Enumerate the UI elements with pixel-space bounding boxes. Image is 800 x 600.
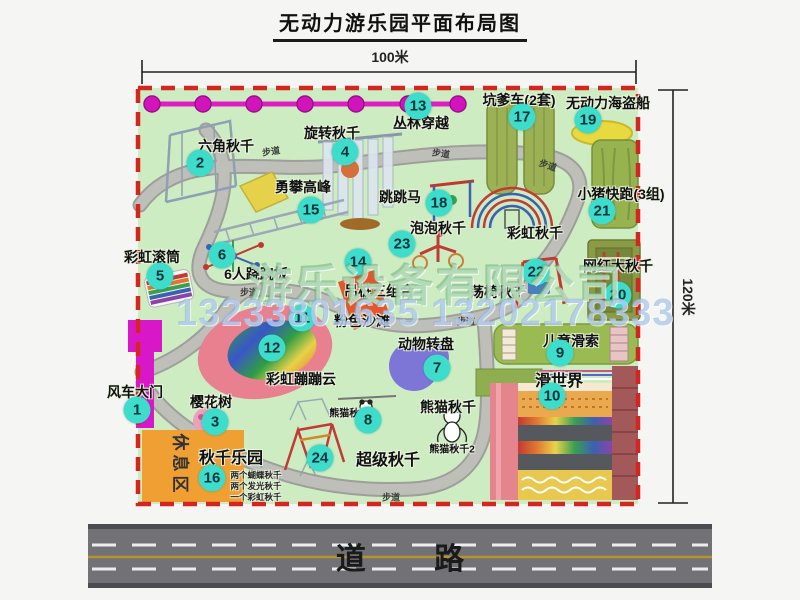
label-footpath: 步道 [431,145,451,160]
label-rainbow-swing: 彩虹秋千 [507,223,563,243]
badge-12: 12 [259,335,286,362]
label-jumping-horse: 跳跳马 [379,187,421,207]
badge-10: 10 [539,383,566,410]
badge-6: 6 [209,242,236,269]
badge-18: 18 [426,190,453,217]
badge-1: 1 [124,397,151,424]
badge-24: 24 [307,445,334,472]
badge-3: 3 [202,409,229,436]
road-label: 道 路 [306,534,494,578]
label-animal-turntable: 动物转盘 [398,334,454,354]
label-piggy-run: 小猪快跑(3组) [577,184,664,204]
label-bounce-cloud: 彩虹蹦蹦云 [266,369,336,389]
badge-17: 17 [509,104,536,131]
height-dimension-label: 120米 [678,278,698,315]
badge-15: 15 [298,197,325,224]
width-dimension-label: 100米 [371,47,408,67]
badge-9: 9 [547,340,574,367]
label-super-swing: 超级秋千 [356,446,420,470]
badge-4: 4 [332,139,359,166]
label-panda-swing: 熊猫秋千 [420,397,476,417]
badge-5: 5 [147,263,174,290]
badge-21: 21 [589,198,616,225]
label-rest-area: 休息区 [170,434,195,497]
badge-8: 8 [355,407,382,434]
badge-16: 16 [199,465,226,492]
label-footpath: 步道 [382,491,400,504]
badge-13: 13 [405,93,432,120]
watermark-phone: 13233801635 13202178333 [176,292,675,335]
badge-7: 7 [424,355,451,382]
label-climbing-peak: 勇攀高峰 [275,177,331,197]
label-panda-swing-2: 熊猫秋千2 [429,441,475,456]
label-swing-note-3: 一个彩虹秋千 [230,491,281,503]
label-bubble-swing: 泡泡秋千 [410,218,466,238]
screenshot-root: 无动力游乐园平面布局图 100米 120米 风车大门 六角秋千 樱花树 旋转秋千… [0,0,800,600]
badge-19: 19 [575,107,602,134]
label-footpath: 步道 [261,143,281,158]
badge-2: 2 [187,150,214,177]
